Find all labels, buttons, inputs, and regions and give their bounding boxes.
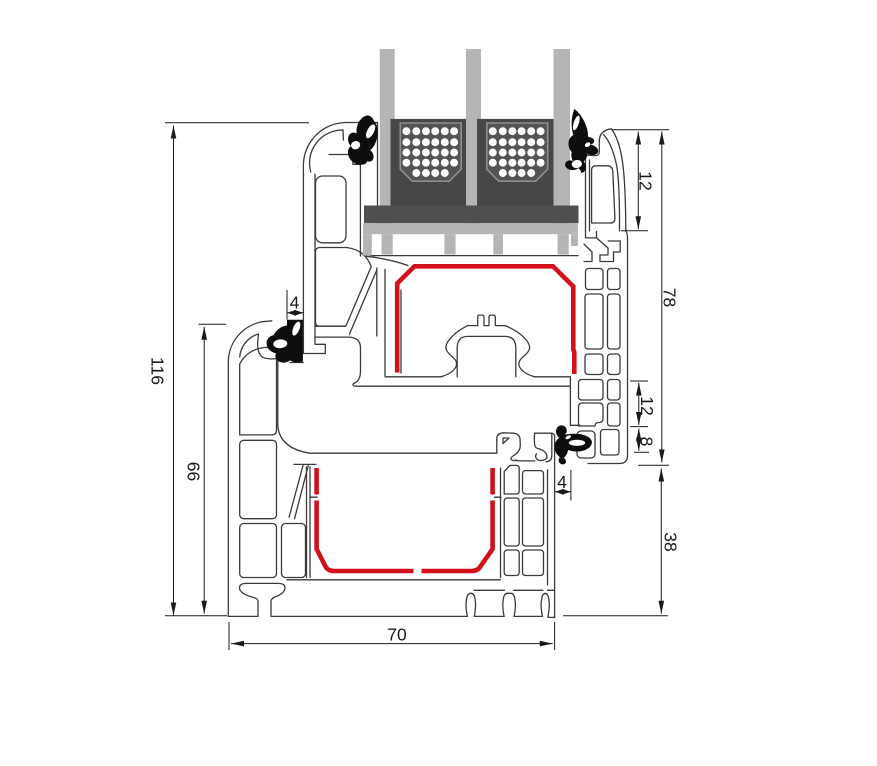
svg-text:4: 4 xyxy=(557,472,567,492)
svg-text:12: 12 xyxy=(637,396,657,415)
svg-text:8: 8 xyxy=(637,437,657,447)
svg-text:12: 12 xyxy=(636,171,656,190)
svg-text:78: 78 xyxy=(660,288,680,307)
svg-text:4: 4 xyxy=(290,293,300,313)
svg-text:116: 116 xyxy=(148,357,168,385)
svg-text:38: 38 xyxy=(661,532,681,551)
svg-text:70: 70 xyxy=(387,625,407,645)
svg-text:66: 66 xyxy=(184,462,204,481)
